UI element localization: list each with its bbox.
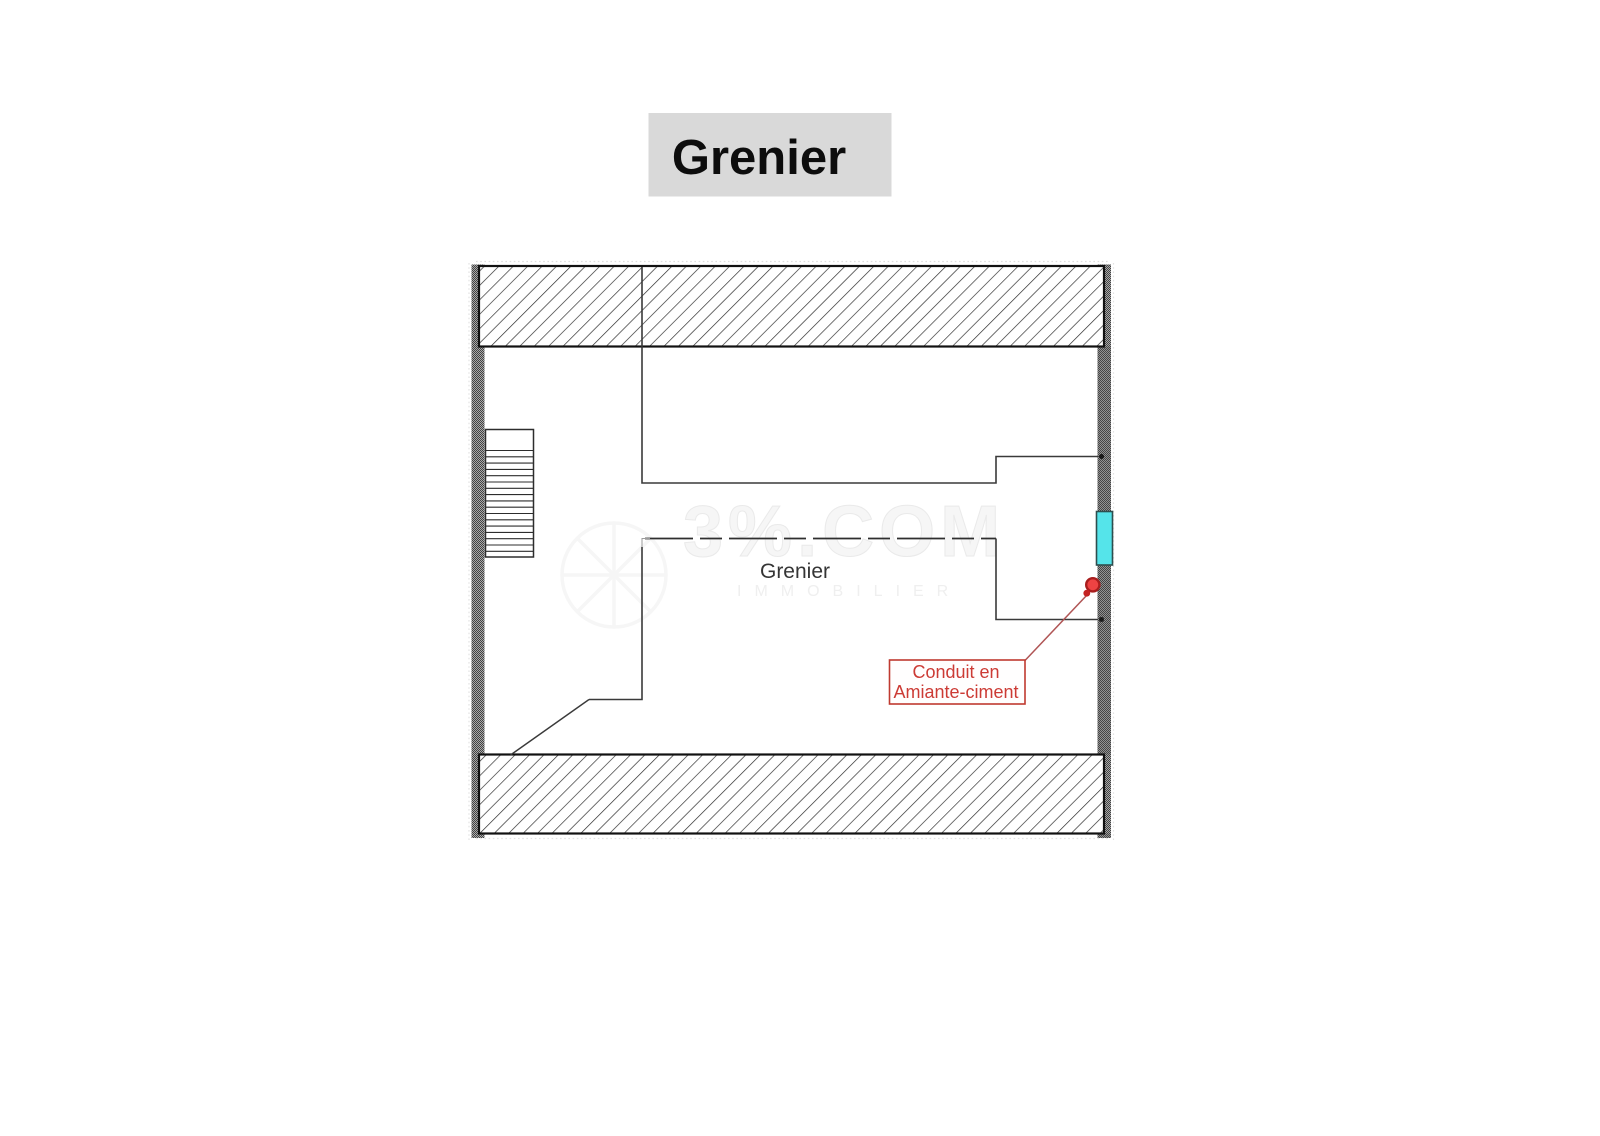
svg-text:Grenier: Grenier	[672, 131, 846, 185]
svg-text:IMMOBILIER: IMMOBILIER	[737, 583, 961, 600]
svg-text:Amiante-ciment: Amiante-ciment	[893, 682, 1018, 702]
svg-text:3%.COM: 3%.COM	[683, 492, 1005, 572]
svg-text:Conduit en: Conduit en	[912, 662, 999, 682]
svg-text:Grenier: Grenier	[760, 560, 830, 583]
